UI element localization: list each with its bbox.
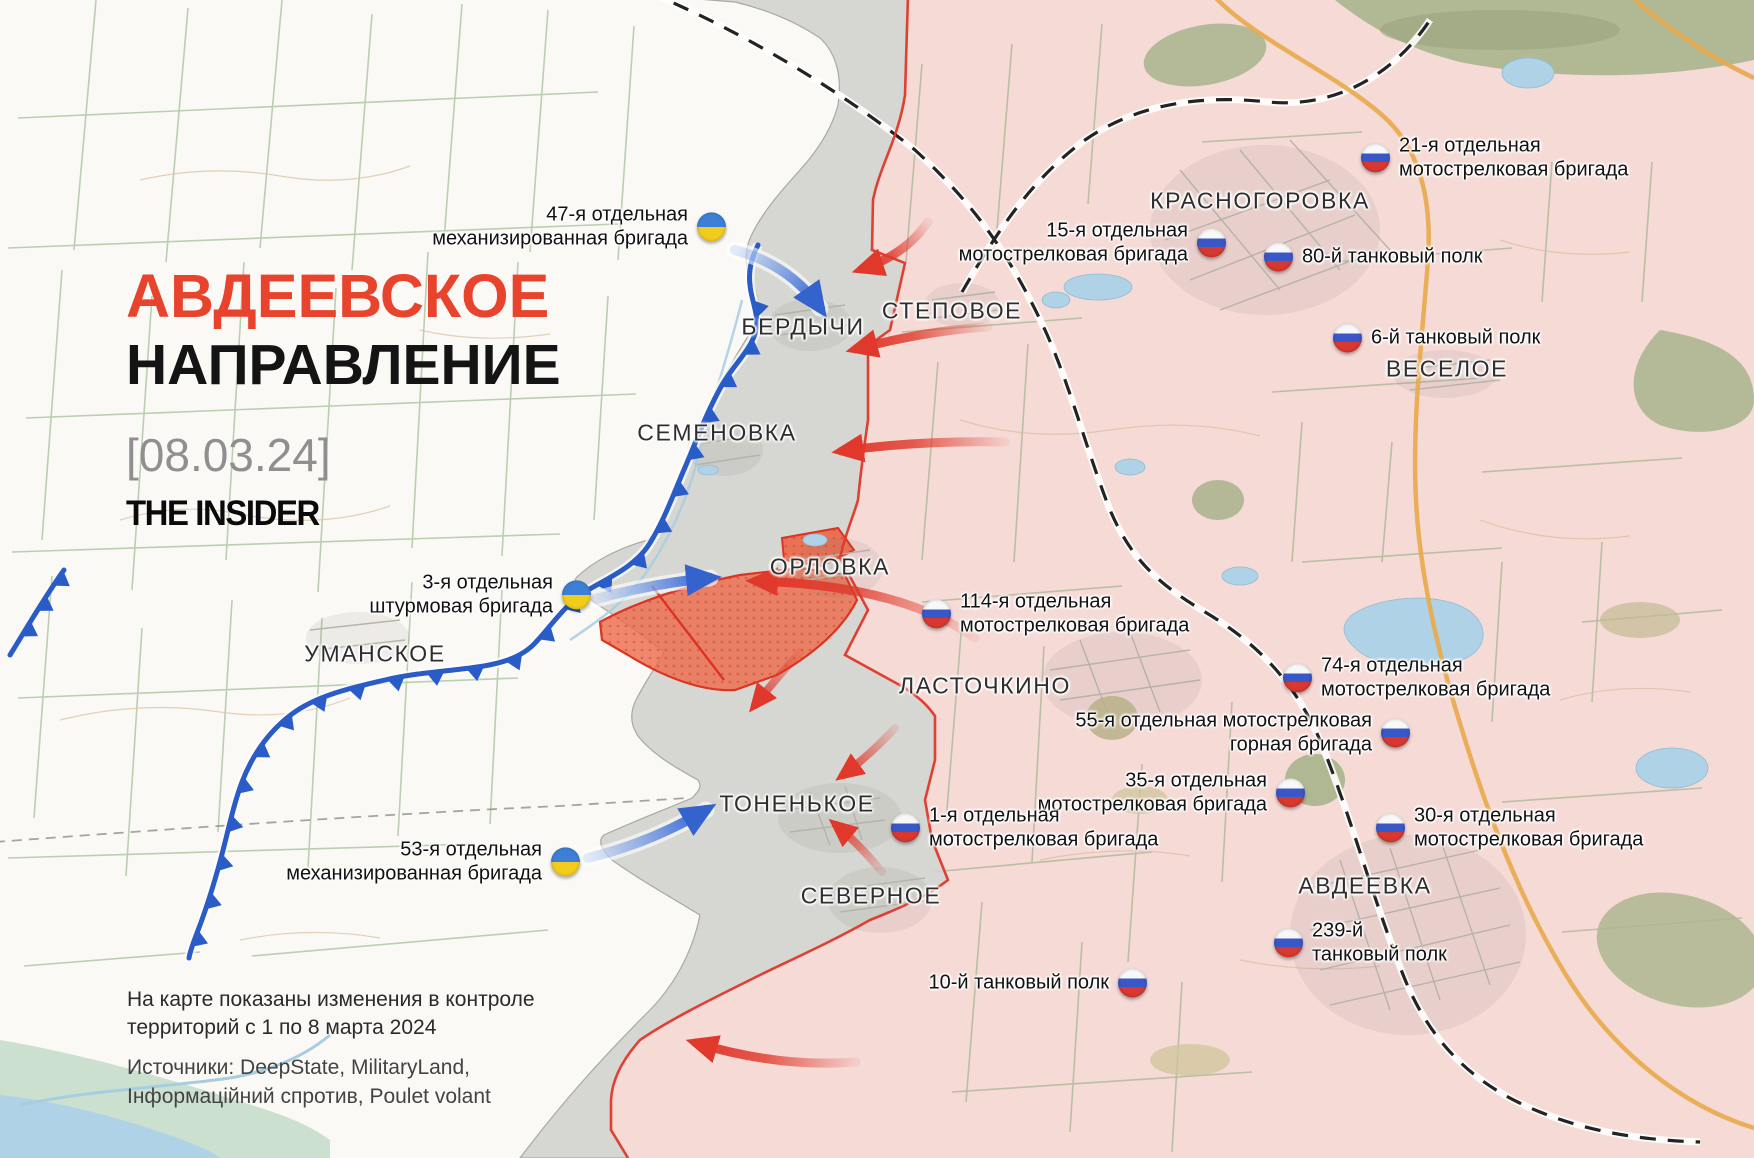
unit-label-ru-239th-tank-regiment: 239-йтанковый полк [1274,919,1447,966]
russia-flag-icon [1283,664,1312,693]
unit-label-ru-30th-motor-rifle-brigade: 30-я отдельнаямотострелковая бригада [1376,804,1643,851]
unit-label-ru-55th-mountain-brigade: 55-я отдельная мотострелковаягорная бриг… [1075,709,1410,756]
russia-flag-icon [922,600,951,629]
note-block: На карте показаны изменения в контроле т… [127,986,535,1111]
russia-flag-icon [1118,969,1147,998]
place-label-krasnohorivka: КРАСНОГОРОВКА [1150,188,1370,215]
unit-label-ru-80th-tank-regiment: 80-й танковый полк [1264,243,1483,272]
place-label-orlivka: ОРЛОВКА [770,554,890,581]
russia-flag-icon [1264,243,1293,272]
russia-flag-icon [1381,719,1410,748]
unit-label-ru-15th-motor-rifle-brigade: 15-я отдельнаямотострелковая бригада [959,219,1226,266]
place-label-semenivka: СЕМЕНОВКА [637,420,796,447]
unit-label-ua-53rd-mech-brigade: 53-я отдельнаямеханизированная бригада [286,838,580,885]
title-date: [08.03.24] [126,428,561,482]
russia-flag-icon [1361,144,1390,173]
ukraine-flag-icon [562,581,591,610]
place-label-umanske: УМАНСКОЕ [304,641,446,668]
map-stage: АВДЕЕВСКОЕ НАПРАВЛЕНИЕ [08.03.24] THE IN… [0,0,1754,1158]
title-line2: НАПРАВЛЕНИЕ [126,337,561,394]
publisher-logo: THE INSIDER [126,494,535,534]
place-label-tonenke: ТОНЕНЬКОЕ [719,791,874,818]
unit-label-ru-1st-motor-rifle-brigade: 1-я отдельнаямотострелковая бригада [891,804,1158,851]
place-label-lastochkyne: ЛАСТОЧКИНО [899,673,1071,700]
ukraine-flag-icon [697,213,726,242]
russia-flag-icon [1376,814,1405,843]
unit-label-ru-10th-tank-regiment: 10-й танковый полк [929,969,1148,998]
russia-flag-icon [1333,324,1362,353]
unit-label-ua-47th-mech-brigade: 47-я отдельнаямеханизированная бригада [432,203,726,250]
russia-flag-icon [891,814,920,843]
sources-line2: Інформаційний спротив, Poulet volant [127,1083,535,1111]
unit-label-ru-114th-motor-rifle-brigade: 114-я отдельнаямотострелковая бригада [922,590,1189,637]
note-line1: На карте показаны изменения в контроле [127,986,535,1014]
unit-label-ua-3rd-assault-brigade: 3-я отдельнаяштурмовая бригада [369,571,591,618]
sources-line1: Источники: DeepState, MilitaryLand, [127,1054,535,1082]
unit-label-ru-74th-motor-rifle-brigade: 74-я отдельнаямотострелковая бригада [1283,654,1550,701]
title-line1: АВДЕЕВСКОЕ [126,266,561,327]
place-label-stepove: СТЕПОВОЕ [882,298,1022,325]
place-label-severne: СЕВЕРНОЕ [801,883,942,910]
unit-label-ru-21st-motor-rifle-brigade: 21-я отдельнаямотострелковая бригада [1361,134,1628,181]
place-label-berdychi: БЕРДЫЧИ [741,314,864,341]
ukraine-flag-icon [551,848,580,877]
place-label-avdiivka: АВДЕЕВКА [1298,873,1431,900]
title-block: АВДЕЕВСКОЕ НАПРАВЛЕНИЕ [08.03.24] THE IN… [126,266,561,534]
note-line2: территорий с 1 по 8 марта 2024 [127,1014,535,1042]
place-label-vesele: ВЕСЕЛОЕ [1386,356,1508,383]
unit-label-ru-6th-tank-regiment: 6-й танковый полк [1333,324,1540,353]
russia-flag-icon [1276,779,1305,808]
russia-flag-icon [1274,929,1303,958]
russia-flag-icon [1197,229,1226,258]
